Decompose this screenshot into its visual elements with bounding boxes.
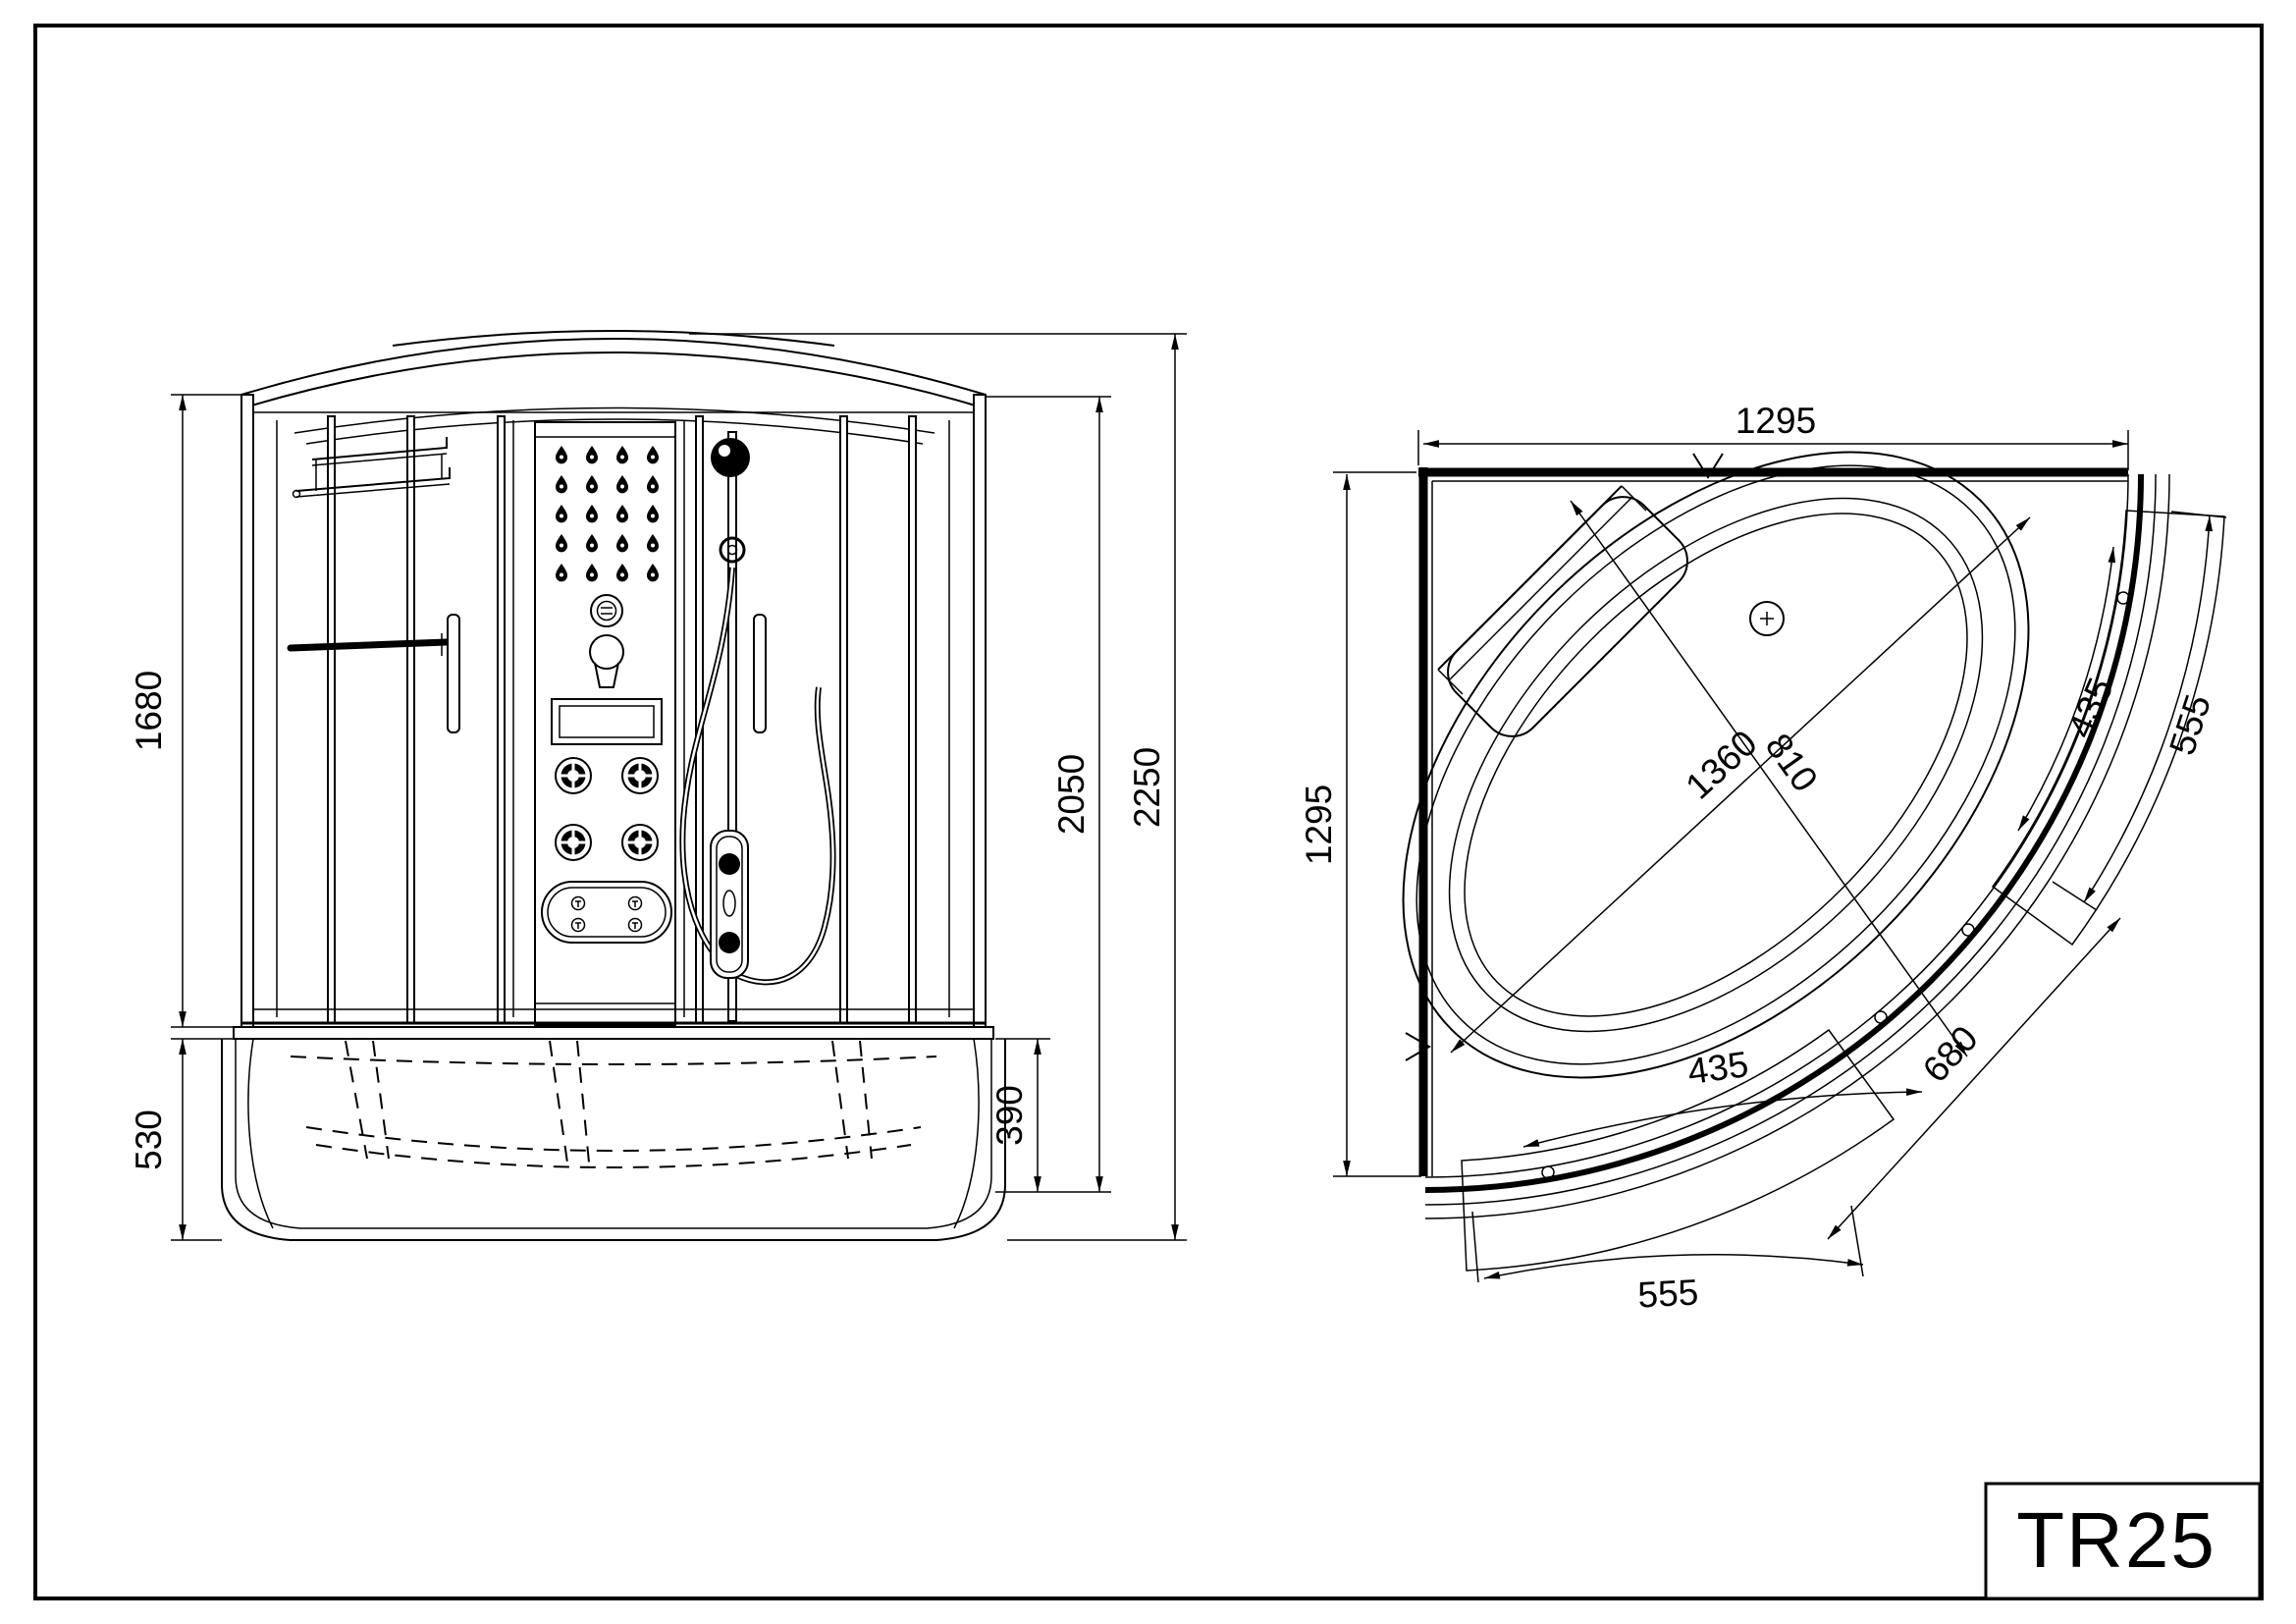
dim-inner-height: 2050 [1051,754,1092,835]
dim-total-height: 2250 [1127,747,1167,828]
drawing-sheet: 1680 530 390 2050 2250 [0,0,2296,1624]
hand-shower-holder [711,831,748,978]
title-block: TR25 [1986,1484,2260,1598]
dim-bottom-door-glass: 435 [1685,1044,1751,1092]
right-door-handle[interactable] [754,615,766,732]
dim-overall-depth: 1295 [1299,785,1339,865]
dim-overall-width: 1295 [1735,401,1816,441]
model-code: TR25 [2016,1496,2216,1584]
dim-bottom-door-panel: 555 [1636,1272,1699,1315]
shower-head-icon [711,438,750,477]
control-column [535,422,675,1025]
dim-glass-height: 1680 [129,671,169,751]
dim-base-height: 530 [129,1110,169,1170]
dim-tub-depth: 390 [989,1085,1030,1146]
technical-drawing: 1680 530 390 2050 2250 [0,0,2296,1624]
left-door-handle[interactable] [448,615,459,732]
